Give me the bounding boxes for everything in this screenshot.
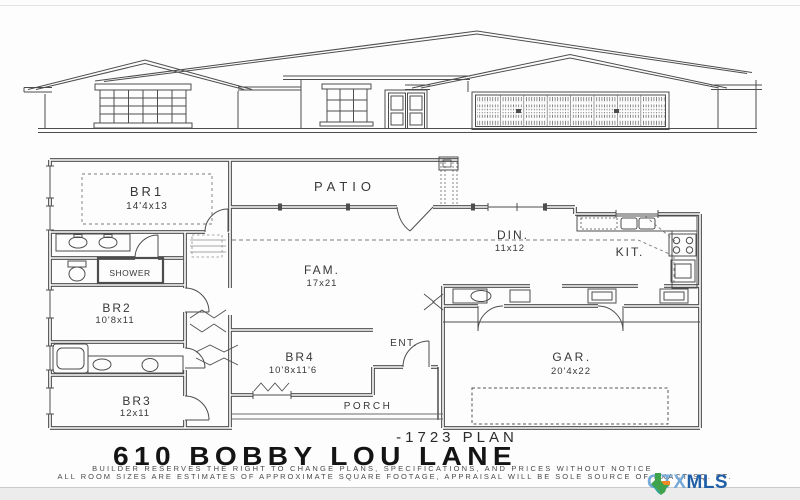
room-label-kit: KIT. <box>616 245 645 259</box>
room-dim-gar: 20'4x22 <box>551 366 591 377</box>
room-dim-br2: 10'8x11 <box>95 315 134 326</box>
room-label-br3: BR3 <box>122 394 151 408</box>
room-label-porch: PORCH <box>344 401 393 412</box>
room-dim-br3: 12x11 <box>120 408 150 419</box>
elevation-left-window <box>94 84 192 128</box>
room-labels: BR1 14'4x13 PATIO DIN. 11x12 KIT. FAM. 1… <box>95 179 644 419</box>
utility-fixtures <box>453 289 688 303</box>
floor-plan-drawing: BR1 14'4x13 PATIO DIN. 11x12 KIT. FAM. 1… <box>46 157 700 428</box>
room-label-fam: FAM. <box>304 263 340 277</box>
house-drawing-svg: BR1 14'4x13 PATIO DIN. 11x12 KIT. FAM. 1… <box>0 0 800 500</box>
front-elevation-drawing <box>24 31 762 133</box>
hall-bath-fixtures <box>53 344 183 373</box>
room-label-din: DIN. <box>497 228 529 242</box>
room-label-gar: GAR. <box>552 350 591 364</box>
room-dim-br1: 14'4x13 <box>126 201 168 212</box>
ctxmls-logo: CTX MLS <box>647 472 728 494</box>
room-label-patio: PATIO <box>314 179 376 194</box>
room-label-br2: BR2 <box>102 301 131 315</box>
room-dim-din: 11x12 <box>495 243 525 254</box>
room-label-ent: ENT. <box>390 338 418 349</box>
room-label-br1: BR1 <box>130 184 164 199</box>
garage-door-dashed-outline <box>472 388 668 424</box>
elevation-front-door <box>385 90 427 129</box>
room-label-br4: BR4 <box>285 350 314 364</box>
hall-closet <box>190 235 226 257</box>
listing-drawing-page: BR1 14'4x13 PATIO DIN. 11x12 KIT. FAM. 1… <box>0 0 800 500</box>
room-label-shower: SHOWER <box>109 268 150 278</box>
room-dim-br4: 10'8x11'6 <box>269 365 317 376</box>
logo-mls-text: MLS <box>687 472 729 494</box>
patio-column <box>439 157 458 205</box>
room-dim-fam: 17x21 <box>307 278 338 289</box>
texas-icon <box>647 472 671 496</box>
porch-slab-lines <box>232 414 443 419</box>
br1-tray-ceiling <box>82 174 212 224</box>
elevation-garage-door <box>472 92 669 130</box>
elevation-center-window <box>320 84 373 126</box>
